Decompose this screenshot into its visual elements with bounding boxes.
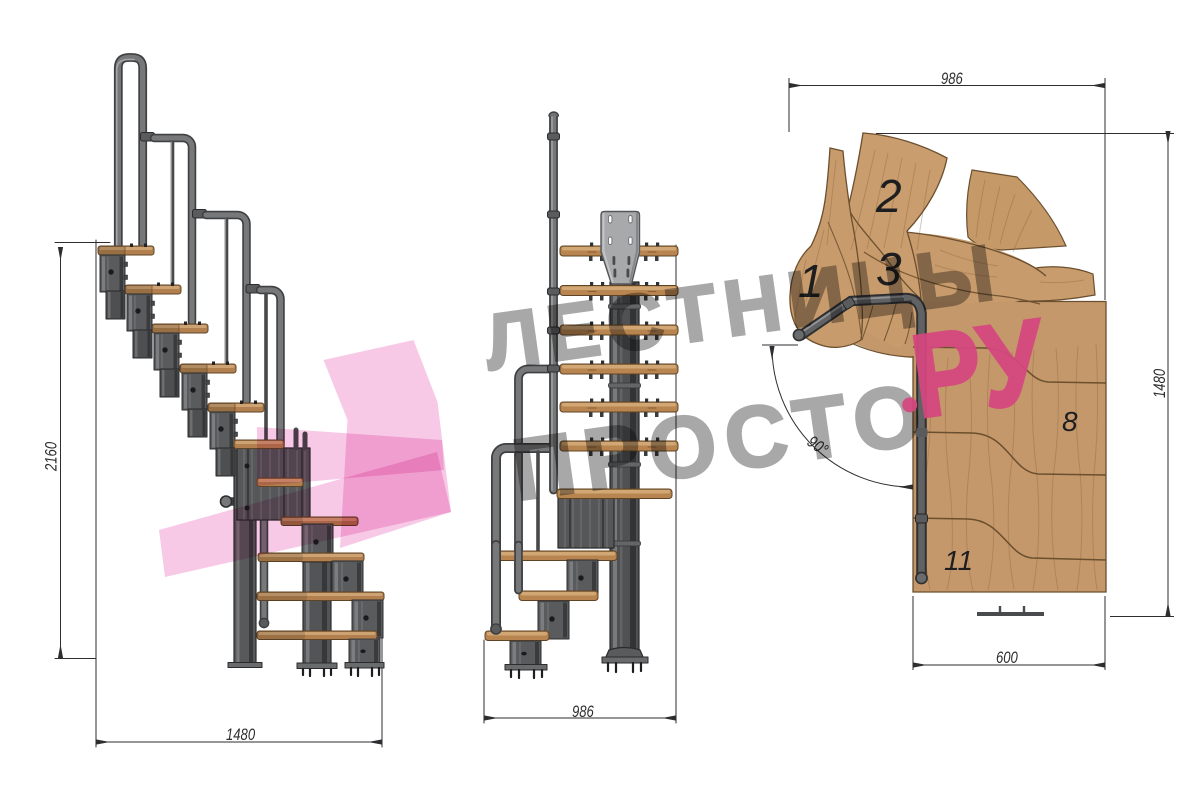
svg-text:11: 11 [944, 545, 973, 576]
svg-text:600: 600 [996, 649, 1018, 668]
svg-text:1480: 1480 [226, 726, 256, 745]
svg-text:986: 986 [572, 703, 594, 722]
svg-text:2160: 2160 [42, 441, 61, 472]
svg-text:8: 8 [1062, 406, 1078, 437]
svg-text:986: 986 [941, 70, 963, 89]
svg-text:2: 2 [875, 170, 902, 222]
svg-text:РУ: РУ [904, 293, 1055, 443]
svg-text:1480: 1480 [1151, 368, 1170, 398]
